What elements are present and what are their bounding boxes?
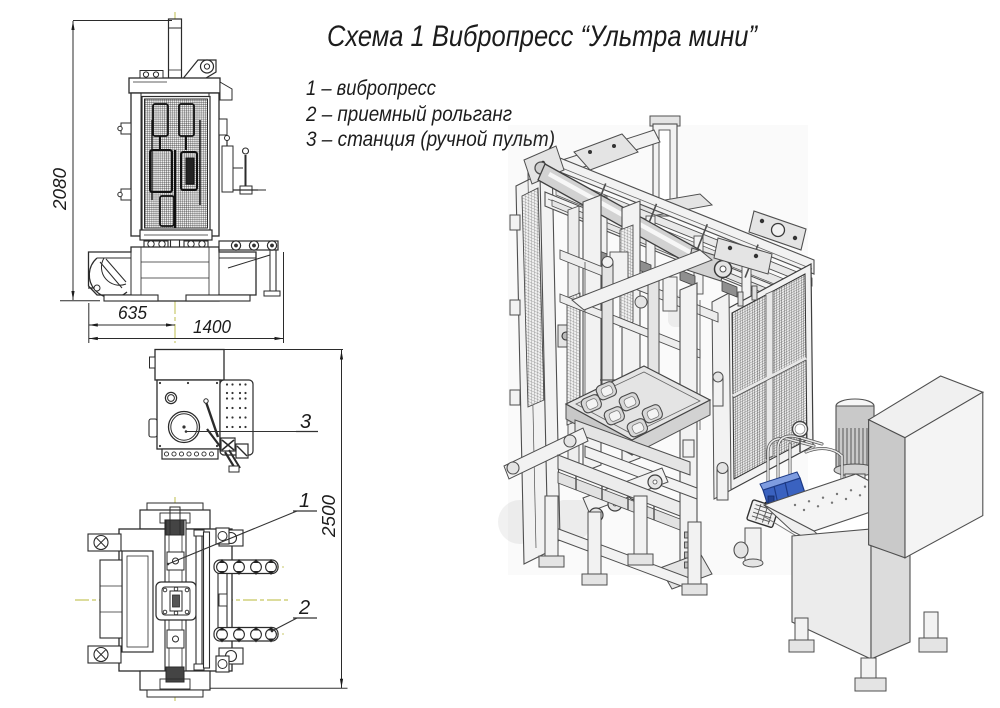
svg-text:1: 1 bbox=[299, 490, 310, 512]
svg-text:Схема 1 Вибропресс “Ультра мин: Схема 1 Вибропресс “Ультра мини” bbox=[327, 20, 759, 53]
svg-text:635: 635 bbox=[118, 303, 148, 323]
svg-text:2500: 2500 bbox=[319, 495, 339, 538]
svg-text:1400: 1400 bbox=[193, 317, 231, 337]
svg-text:1 – вибропресс: 1 – вибропресс bbox=[306, 77, 436, 100]
svg-text:3: 3 bbox=[300, 411, 311, 433]
svg-text:2 – приемный рольганг: 2 – приемный рольганг bbox=[305, 103, 512, 126]
svg-text:2080: 2080 bbox=[50, 168, 70, 211]
svg-text:2: 2 bbox=[298, 597, 310, 619]
